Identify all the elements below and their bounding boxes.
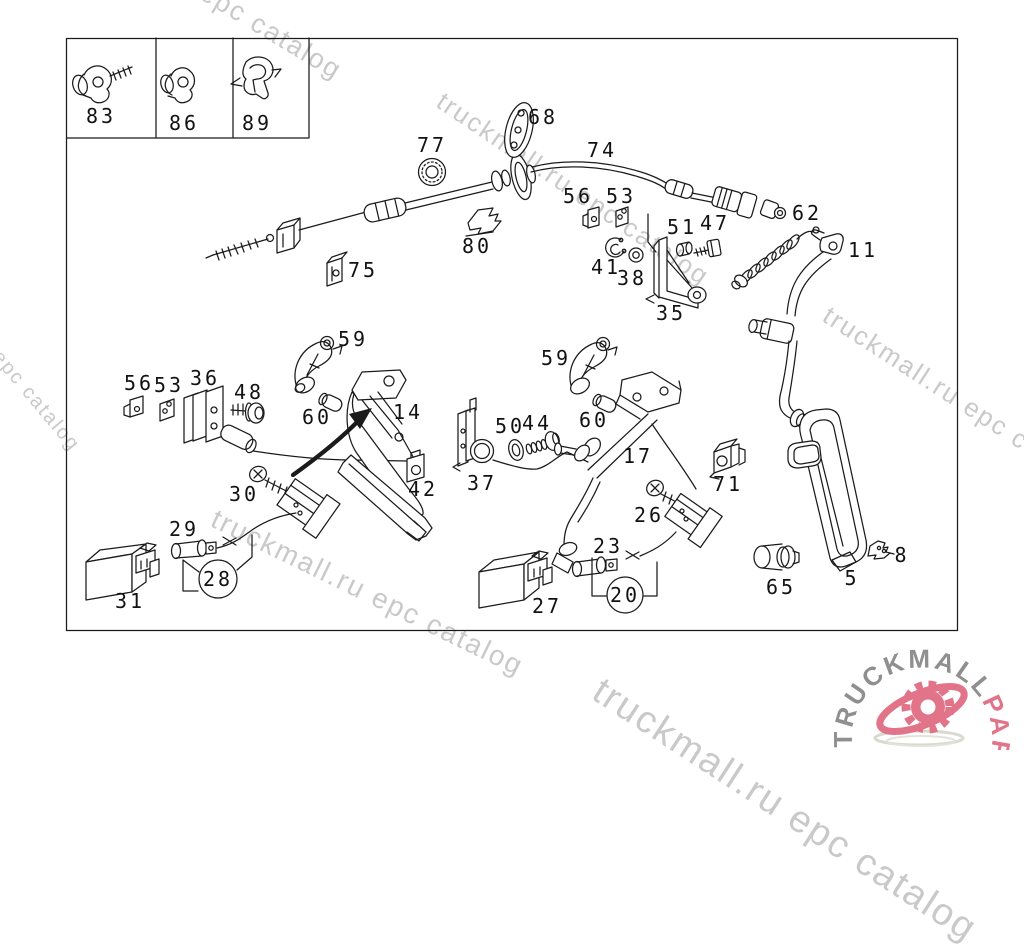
part-label-53-left: 53	[154, 373, 184, 397]
grommet-50	[507, 438, 526, 462]
accelerator-pedal-5	[788, 409, 867, 571]
plate-53-upper	[616, 207, 628, 227]
part-label-23: 23	[593, 534, 623, 558]
bolt-48	[231, 403, 264, 423]
part-label-60-left: 60	[302, 405, 332, 429]
part-label-38: 38	[617, 266, 647, 290]
part-label-17: 17	[623, 444, 653, 468]
part-label-11: 11	[848, 238, 878, 262]
part-label-5: 5	[844, 566, 859, 590]
callout-28: 28	[199, 560, 237, 598]
part-label-86: 86	[169, 111, 199, 135]
part-label-56-upper: 56	[563, 184, 593, 208]
part-label-89: 89	[242, 111, 272, 135]
part-label-30: 30	[229, 482, 259, 506]
part-label-59-mid: 59	[541, 346, 571, 370]
clip-80	[466, 208, 501, 236]
part-label-71: 71	[713, 472, 743, 496]
clip-8	[868, 541, 894, 559]
knurled-nut-77	[419, 159, 446, 186]
part-label-51: 51	[667, 215, 697, 239]
part-label-44: 44	[522, 411, 552, 435]
bolt-47	[694, 239, 721, 257]
part-label-83: 83	[86, 104, 116, 128]
part-label-80: 80	[462, 234, 492, 258]
part-label-31: 31	[115, 589, 145, 613]
part-label-48: 48	[234, 380, 264, 404]
parts-catalog-page: { "watermark": { "text": "truckmall.ru e…	[0, 0, 1024, 750]
part-label-62: 62	[792, 201, 822, 225]
part-label-8: 8	[894, 543, 909, 567]
part-label-36: 36	[190, 366, 220, 390]
part-label-56-left: 56	[124, 371, 154, 395]
sensor-bracket-28	[274, 475, 340, 539]
part-label-42: 42	[408, 477, 438, 501]
part-label-68: 68	[528, 105, 558, 129]
bushing-51	[677, 242, 693, 256]
spring-62	[730, 227, 819, 291]
part-label-35: 35	[656, 301, 686, 325]
part-label-28: 28	[203, 567, 233, 591]
spring-59-left	[293, 337, 342, 397]
part-label-74: 74	[587, 138, 617, 162]
part-label-20: 20	[610, 583, 640, 607]
part-label-29: 29	[169, 517, 199, 541]
inset-part-clip-89	[231, 57, 281, 99]
part-label-26: 26	[634, 503, 664, 527]
part-label-27: 27	[532, 594, 562, 618]
exploded-parts-diagram: 28	[0, 0, 1024, 750]
clip-56-left	[124, 396, 143, 417]
bracket-35	[646, 237, 706, 308]
throttle-cable-74	[206, 153, 786, 260]
callout-20: 20	[607, 577, 643, 613]
part-label-59-left: 59	[338, 327, 368, 351]
inset-part-clamp-86	[159, 68, 195, 103]
part-label-47: 47	[700, 211, 730, 235]
part-label-65: 65	[766, 575, 796, 599]
part-label-77: 77	[417, 133, 447, 157]
part-label-50: 50	[495, 414, 525, 438]
clip-56-upper	[583, 207, 599, 228]
part-label-37: 37	[467, 471, 497, 495]
part-label-75: 75	[348, 258, 378, 282]
clip-75	[327, 252, 347, 286]
part-label-53-upper: 53	[606, 184, 636, 208]
truckmall-parts-logo: TRUCKMALLPARTS	[822, 645, 1022, 750]
gear-swirl-icon	[874, 677, 969, 746]
part-label-60-mid: 60	[579, 408, 609, 432]
washer-38	[629, 248, 643, 262]
spring-59-mid	[568, 338, 617, 398]
holder-37	[453, 398, 494, 471]
plate-53-left	[160, 399, 174, 421]
inset-part-clamp-83	[70, 66, 132, 103]
part-label-14: 14	[393, 400, 423, 424]
buffer-65	[754, 544, 799, 570]
